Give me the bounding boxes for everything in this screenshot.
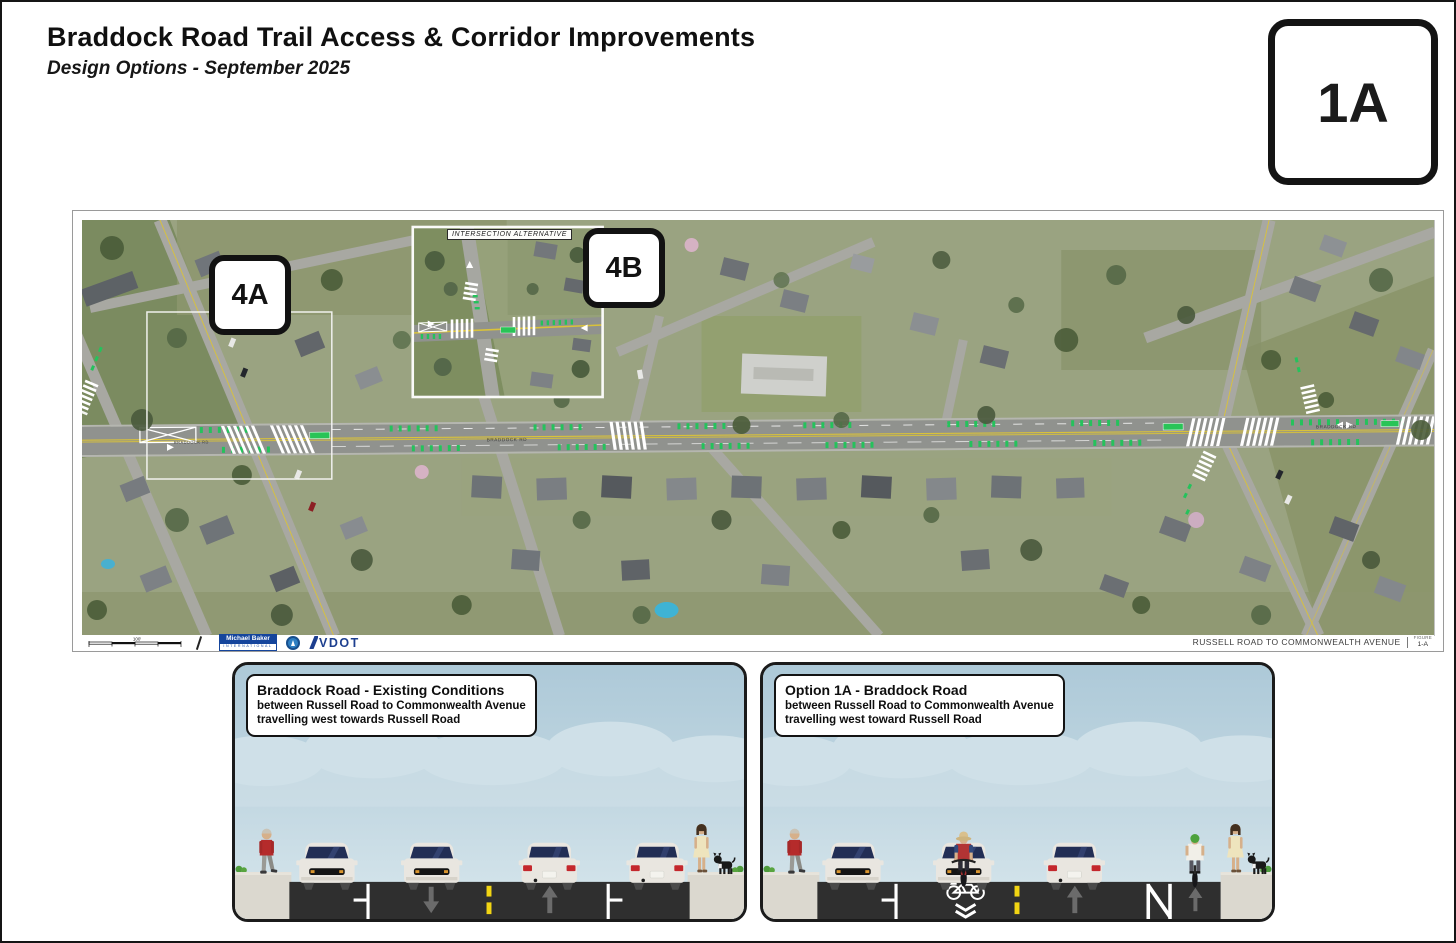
map-footer: 100' Michael Baker INTERNATIONAL VDOT (82, 635, 1435, 650)
cross-sections-row: Braddock Road - Existing Conditions betw… (232, 662, 1275, 922)
travel-lane-car-rear (519, 843, 580, 890)
plan-sheet-page: Braddock Road Trail Access & Corridor Im… (0, 0, 1456, 943)
existing-conditions-line2: travelling west towards Russell Road (257, 713, 526, 727)
corridor-extent-label: RUSSELL ROAD TO COMMONWEALTH AVENUE (1193, 637, 1401, 647)
option-1a-panel: Option 1A - Braddock Road between Russel… (760, 662, 1275, 922)
inset-title: INTERSECTION ALTERNATIVE (447, 229, 572, 240)
page-subtitle: Design Options - September 2025 (47, 58, 350, 80)
existing-conditions-title: Braddock Road - Existing Conditions (257, 682, 526, 698)
figure-divider (1407, 637, 1408, 648)
map-footer-right: RUSSELL ROAD TO COMMONWEALTH AVENUE FIGU… (1193, 636, 1435, 648)
michael-baker-logo-name: Michael Baker (219, 634, 277, 644)
intersection-alternative-inset (413, 227, 603, 397)
road-name-label: BRADDOCK RD (487, 437, 528, 442)
figure-number: 1-A (1418, 642, 1429, 649)
existing-conditions-line1: between Russell Road to Commonwealth Ave… (257, 699, 526, 713)
option-1a-line2: travelling west toward Russell Road (785, 713, 1054, 727)
existing-conditions-caption: Braddock Road - Existing Conditions betw… (246, 674, 537, 737)
scale-label: 100' (133, 637, 142, 642)
option-1a-title: Option 1A - Braddock Road (785, 682, 1054, 698)
north-arrow-mark (196, 637, 210, 649)
map-badge-4a-label: 4A (231, 279, 268, 312)
michael-baker-logo: Michael Baker INTERNATIONAL (219, 634, 277, 650)
option-1a-line1: between Russell Road to Commonwealth Ave… (785, 699, 1054, 713)
map-right-margin (1434, 220, 1443, 636)
parked-car-rear (626, 843, 687, 890)
travel-lane-car-rear (1044, 843, 1105, 890)
vdot-logo: VDOT (309, 636, 360, 650)
travel-lane-car-front (401, 843, 462, 890)
sheet-number-label: 1A (1317, 70, 1389, 135)
city-of-alexandria-logo (286, 636, 300, 650)
vdot-logo-text: VDOT (319, 636, 360, 650)
parked-car-front (296, 843, 357, 890)
existing-conditions-panel: Braddock Road - Existing Conditions betw… (232, 662, 747, 922)
option-1a-caption: Option 1A - Braddock Road between Russel… (774, 674, 1065, 737)
vdot-swoosh-icon (309, 636, 318, 649)
sheet-number-badge: 1A (1268, 19, 1438, 185)
figure-block: FIGURE 1-A (1414, 636, 1432, 648)
michael-baker-logo-sub: INTERNATIONAL (219, 644, 277, 650)
aerial-map: BRADDOCK RD BRADDOCK RD BRADDOCK RD (82, 220, 1435, 636)
map-badge-4b-label: 4B (605, 252, 642, 285)
road-name-label: BRADDOCK RD (174, 440, 209, 445)
road-name-label: BRADDOCK RD (1316, 424, 1357, 429)
page-title: Braddock Road Trail Access & Corridor Im… (47, 22, 755, 53)
parked-car-front (822, 843, 883, 890)
map-badge-4a: 4A (209, 255, 291, 335)
map-footer-left: 100' Michael Baker INTERNATIONAL VDOT (82, 634, 360, 650)
scale-bar: 100' (87, 636, 187, 649)
map-badge-4b: 4B (583, 228, 665, 308)
aerial-map-panel: BRADDOCK RD BRADDOCK RD BRADDOCK RD (72, 210, 1444, 652)
